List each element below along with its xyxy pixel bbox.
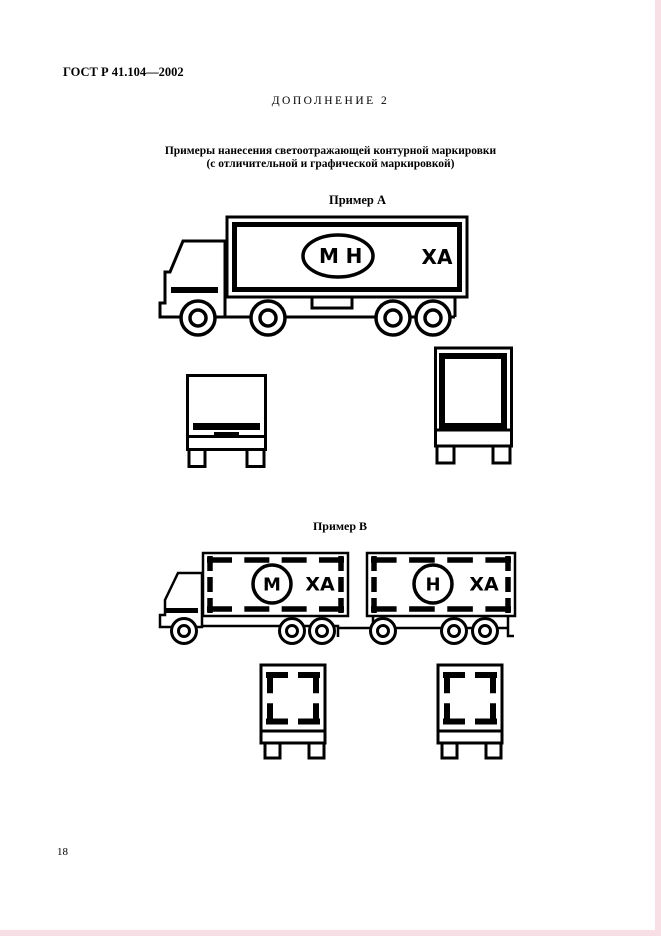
- scan-edge-tint-bottom: [0, 930, 661, 936]
- wheel-right: [493, 446, 510, 463]
- trailer-rear-panel: [436, 348, 512, 430]
- front-marking-stripe: [193, 423, 260, 430]
- example-a-rear-view-figure: [433, 345, 515, 469]
- wheel-left: [437, 446, 454, 463]
- page-number: 18: [57, 846, 68, 858]
- example-a-side-view-figure: М Н ХА: [150, 210, 480, 342]
- figure-title-line1: Примеры нанесения светоотражающей контур…: [0, 145, 661, 157]
- graphic-marking-text: ХА: [469, 574, 499, 596]
- example-a-label: Пример А: [290, 193, 425, 208]
- wheel-right: [309, 743, 324, 758]
- figure-title-line2: (с отличительной и графической маркировк…: [0, 158, 661, 170]
- supplement-heading: ДОПОЛНЕНИЕ 2: [0, 95, 661, 107]
- example-b-side-view-figure: М ХА Н ХА: [148, 540, 523, 646]
- rear-bumper: [438, 731, 502, 743]
- circle-letter: М: [263, 575, 281, 596]
- wheel-left: [442, 743, 457, 758]
- wheel-left: [265, 743, 280, 758]
- graphic-marking-text: ХА: [305, 574, 335, 596]
- document-page: { "page": { "doc_number": "ГОСТ Р 41.104…: [0, 0, 661, 936]
- cab-side-stripe: [171, 287, 218, 293]
- oval-letter-right: Н: [346, 244, 363, 268]
- example-b-rear-view-truck-figure: [258, 663, 328, 763]
- circle-letter: Н: [425, 575, 440, 596]
- example-a-front-view-figure: [185, 373, 270, 471]
- scan-edge-tint-right: [655, 0, 661, 936]
- document-number: ГОСТ Р 41.104—2002: [63, 65, 184, 80]
- example-b-rear-view-trailer-figure: [435, 663, 505, 763]
- cab-side-stripe: [165, 608, 198, 613]
- graphic-marking-text: ХА: [422, 245, 453, 269]
- wheel-left: [189, 450, 205, 467]
- wheel-right: [247, 450, 264, 467]
- front-bumper: [188, 437, 266, 450]
- rear-bumper: [261, 731, 325, 743]
- oval-letter-left: М: [319, 244, 339, 268]
- rear-bumper: [436, 430, 512, 446]
- wheels: [172, 619, 498, 644]
- underbody-box: [312, 297, 352, 308]
- wheel-right: [486, 743, 501, 758]
- example-b-label: Пример В: [285, 519, 395, 534]
- front-small-stripe: [214, 432, 239, 435]
